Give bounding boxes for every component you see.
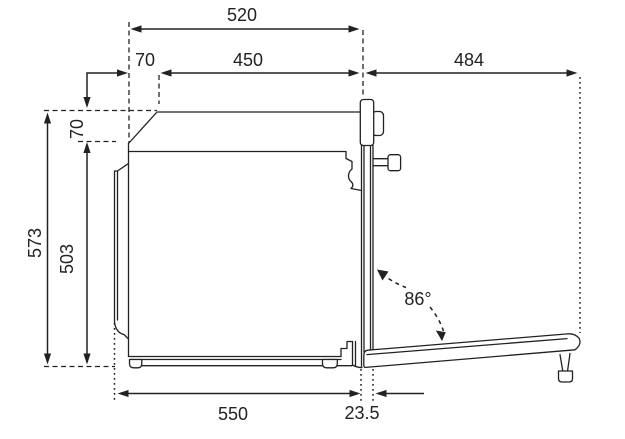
- hinge-arm: [353, 342, 356, 366]
- arrow-up-left-icon: [377, 270, 389, 281]
- dimension-70-left: 70: [67, 119, 87, 139]
- dim-573-label: 573: [25, 228, 45, 258]
- arrow-right-icon: [567, 69, 578, 76]
- oven-rear-foot: [130, 360, 142, 368]
- oven-top-edge: [129, 112, 361, 144]
- arrow-left-icon: [376, 390, 387, 397]
- front-frame: [362, 146, 374, 368]
- oven-body: [115, 112, 374, 368]
- arrow-down-icon: [83, 354, 90, 365]
- arrow-left-icon: [131, 25, 142, 32]
- dim-70-top-label: 70: [135, 50, 155, 70]
- oven-inner-top-edge: [129, 152, 362, 191]
- control-panel-frame: [360, 100, 373, 146]
- dimension-23-5: 23.5: [344, 390, 424, 423]
- dim-484-label: 484: [454, 50, 484, 70]
- dim-450-label: 450: [233, 50, 263, 70]
- oven-dimension-diagram: 520 70 450 484 573 503 70: [0, 0, 625, 439]
- handle: [374, 155, 401, 171]
- door-panel: [364, 334, 580, 368]
- handle-cap: [388, 155, 401, 171]
- dimension-573: 573: [25, 113, 51, 365]
- oven-front-foot: [323, 360, 338, 368]
- arrow-up-icon: [44, 113, 51, 124]
- ext-door-thickness: [361, 369, 373, 403]
- arrow-up-icon: [83, 142, 90, 153]
- dim-leader-70: [87, 73, 118, 104]
- dim-23-5-label: 23.5: [344, 403, 379, 423]
- arrow-right-icon: [350, 390, 361, 397]
- arrow-right-icon: [349, 25, 360, 32]
- arrow-down-icon: [83, 97, 90, 108]
- dimension-angle-86: 86°: [377, 270, 446, 342]
- arrow-down-icon: [44, 354, 51, 365]
- door-handle-stem: [560, 354, 570, 372]
- arrow-left-icon: [118, 390, 129, 397]
- arrow-left-icon: [366, 69, 377, 76]
- diagram-canvas: 520 70 450 484 573 503 70: [0, 0, 625, 439]
- hinge-bracket-step: [341, 342, 353, 357]
- dimension-484: 484: [366, 50, 578, 77]
- dim-520-label: 520: [227, 5, 257, 25]
- dimension-520: 520: [131, 5, 360, 33]
- control-panel: [360, 100, 383, 146]
- door-handle: [559, 371, 573, 382]
- arrow-right-icon: [117, 69, 128, 76]
- dimension-550: 550: [118, 390, 361, 424]
- dim-503-label: 503: [57, 244, 77, 274]
- oven-door-open: [364, 334, 580, 382]
- dimension-70-top: 70: [83, 50, 155, 108]
- arrow-left-icon: [161, 69, 172, 76]
- dim-86deg-label: 86°: [404, 289, 431, 309]
- angle-arc-upper: [382, 274, 406, 288]
- dim-70-left-label: 70: [67, 119, 87, 139]
- dimension-450: 450: [161, 50, 360, 77]
- oven-rear-panel-outer: [115, 164, 129, 339]
- hinge-bottom-curve: [353, 365, 363, 368]
- arrow-down-icon: [436, 331, 446, 342]
- dimension-503: 503: [57, 142, 91, 365]
- arrow-right-icon: [349, 69, 360, 76]
- angle-arc-lower: [430, 307, 444, 331]
- dim-550-label: 550: [218, 404, 248, 424]
